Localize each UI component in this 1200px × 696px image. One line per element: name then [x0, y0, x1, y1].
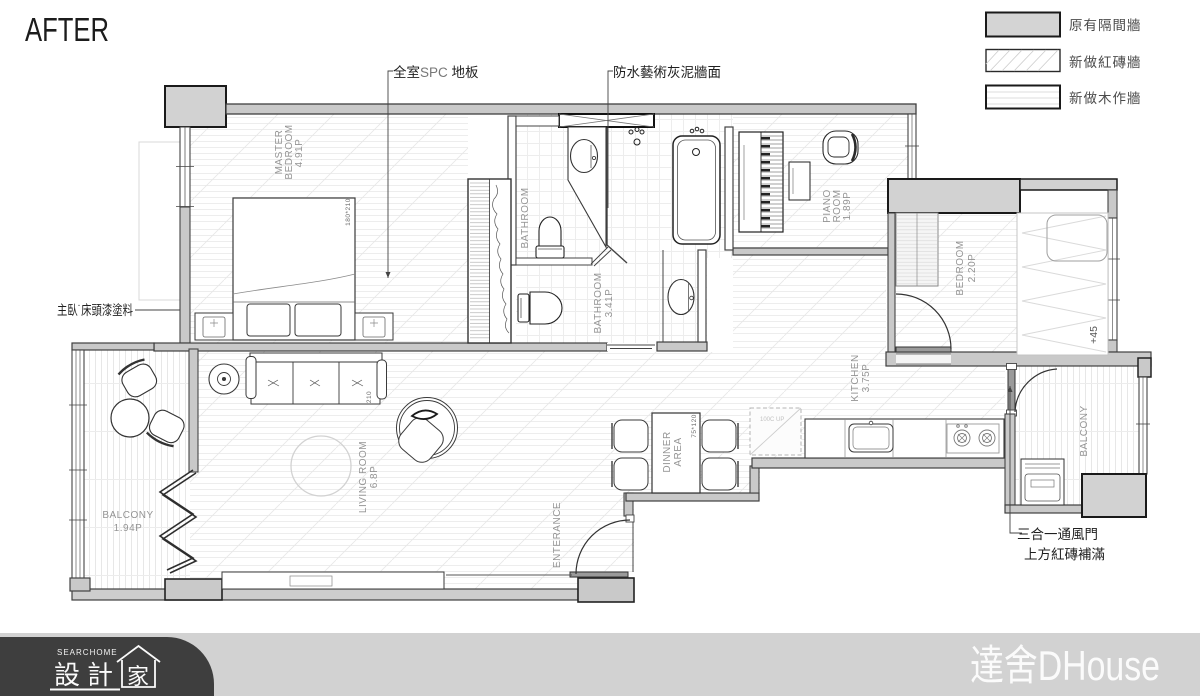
- svg-text:BALCONY: BALCONY: [1079, 405, 1090, 456]
- svg-text:新做紅磚牆: 新做紅磚牆: [1069, 55, 1142, 70]
- svg-text:3.41P: 3.41P: [604, 289, 615, 318]
- svg-text:全室SPC 地板: 全室SPC 地板: [393, 64, 479, 80]
- svg-text:上方紅磚補滿: 上方紅磚補滿: [1024, 547, 1105, 562]
- svg-text:BALCONY: BALCONY: [102, 510, 153, 521]
- svg-text:180*210: 180*210: [345, 198, 352, 226]
- svg-text:AFTER: AFTER: [25, 11, 109, 48]
- svg-text:210: 210: [366, 391, 373, 403]
- svg-text:新做木作牆: 新做木作牆: [1069, 91, 1142, 106]
- svg-text:BATHROOM: BATHROOM: [593, 272, 604, 333]
- svg-text:主臥˙床頭漆塗料: 主臥˙床頭漆塗料: [57, 302, 133, 318]
- svg-text:BATHROOM: BATHROOM: [520, 187, 531, 248]
- svg-text:KITCHEN: KITCHEN: [850, 354, 861, 401]
- svg-text:原有隔間牆: 原有隔間牆: [1069, 18, 1142, 33]
- svg-text:6.8P: 6.8P: [369, 466, 380, 489]
- svg-text:達舍DHouse: 達舍DHouse: [970, 642, 1160, 689]
- svg-text:ENTERANCE: ENTERANCE: [552, 502, 563, 568]
- svg-text:3.75P: 3.75P: [861, 364, 872, 393]
- svg-text:三合一通風門: 三合一通風門: [1017, 527, 1098, 542]
- svg-text:家: 家: [127, 664, 149, 689]
- svg-text:1.89P: 1.89P: [842, 192, 853, 221]
- svg-text:LIVING ROOM: LIVING ROOM: [358, 441, 369, 513]
- svg-text:4.91P: 4.91P: [294, 139, 305, 168]
- svg-text:BEDROOM: BEDROOM: [955, 240, 966, 295]
- svg-text:+45: +45: [1088, 326, 1100, 344]
- svg-text:AREA: AREA: [673, 437, 684, 466]
- svg-text:DINNER: DINNER: [662, 431, 673, 472]
- svg-text:75*120: 75*120: [691, 414, 698, 438]
- svg-text:1.94P: 1.94P: [114, 523, 143, 534]
- svg-text:2.20P: 2.20P: [967, 254, 978, 283]
- svg-text:SEARCHOME: SEARCHOME: [57, 648, 118, 657]
- svg-text:100C UP: 100C UP: [760, 417, 784, 423]
- svg-text:防水藝術灰泥牆面: 防水藝術灰泥牆面: [613, 65, 721, 80]
- svg-text:設計: 設計: [54, 660, 120, 690]
